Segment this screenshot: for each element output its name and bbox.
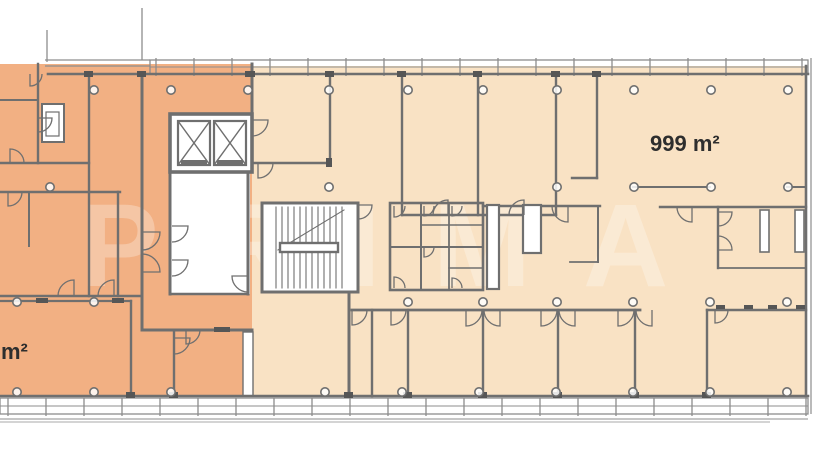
column-icon <box>90 298 98 306</box>
column-icon <box>707 86 715 94</box>
column-icon <box>706 298 714 306</box>
riser-shaft <box>523 205 541 253</box>
column-icon <box>321 388 329 396</box>
column-icon <box>90 388 98 396</box>
column-icon <box>629 388 637 396</box>
column-icon <box>553 298 561 306</box>
column-icon <box>783 298 791 306</box>
stair-handrail <box>280 243 338 252</box>
floor-plan: PRIMA <box>0 0 835 467</box>
column-icon <box>479 298 487 306</box>
column-icon <box>13 298 21 306</box>
column-icon <box>479 86 487 94</box>
column-icon <box>90 86 98 94</box>
column-icon <box>167 86 175 94</box>
unit-right-area-label: 999 m² <box>650 131 720 156</box>
floor-plan-page: PRIMA <box>0 0 835 467</box>
column-icon <box>706 388 714 396</box>
column-icon <box>325 183 333 191</box>
elevator-shaft <box>170 114 252 172</box>
column-icon <box>13 388 21 396</box>
column-icon <box>629 298 637 306</box>
column-icon <box>707 183 715 191</box>
column-icon <box>404 298 412 306</box>
column-icon <box>475 388 483 396</box>
column-icon <box>784 86 792 94</box>
column-icon <box>46 183 54 191</box>
column-icon <box>553 86 561 94</box>
column-icon <box>552 388 560 396</box>
riser-shaft <box>487 205 499 289</box>
column-icon <box>404 86 412 94</box>
exterior-right-wall <box>806 58 811 414</box>
column-icon <box>398 388 406 396</box>
open-door-leaf <box>760 210 769 252</box>
open-door-leaf <box>46 112 59 136</box>
column-icon <box>325 86 333 94</box>
open-door-leaf <box>795 210 804 252</box>
unit-left-area-label: m² <box>1 339 28 364</box>
column-icon <box>167 388 175 396</box>
column-icon <box>783 388 791 396</box>
column-icon <box>784 183 792 191</box>
column-icon <box>244 86 252 94</box>
column-icon <box>630 183 638 191</box>
column-icon <box>630 86 638 94</box>
column-icon <box>553 183 561 191</box>
staircase <box>262 203 358 292</box>
facade-bottom <box>0 396 808 422</box>
